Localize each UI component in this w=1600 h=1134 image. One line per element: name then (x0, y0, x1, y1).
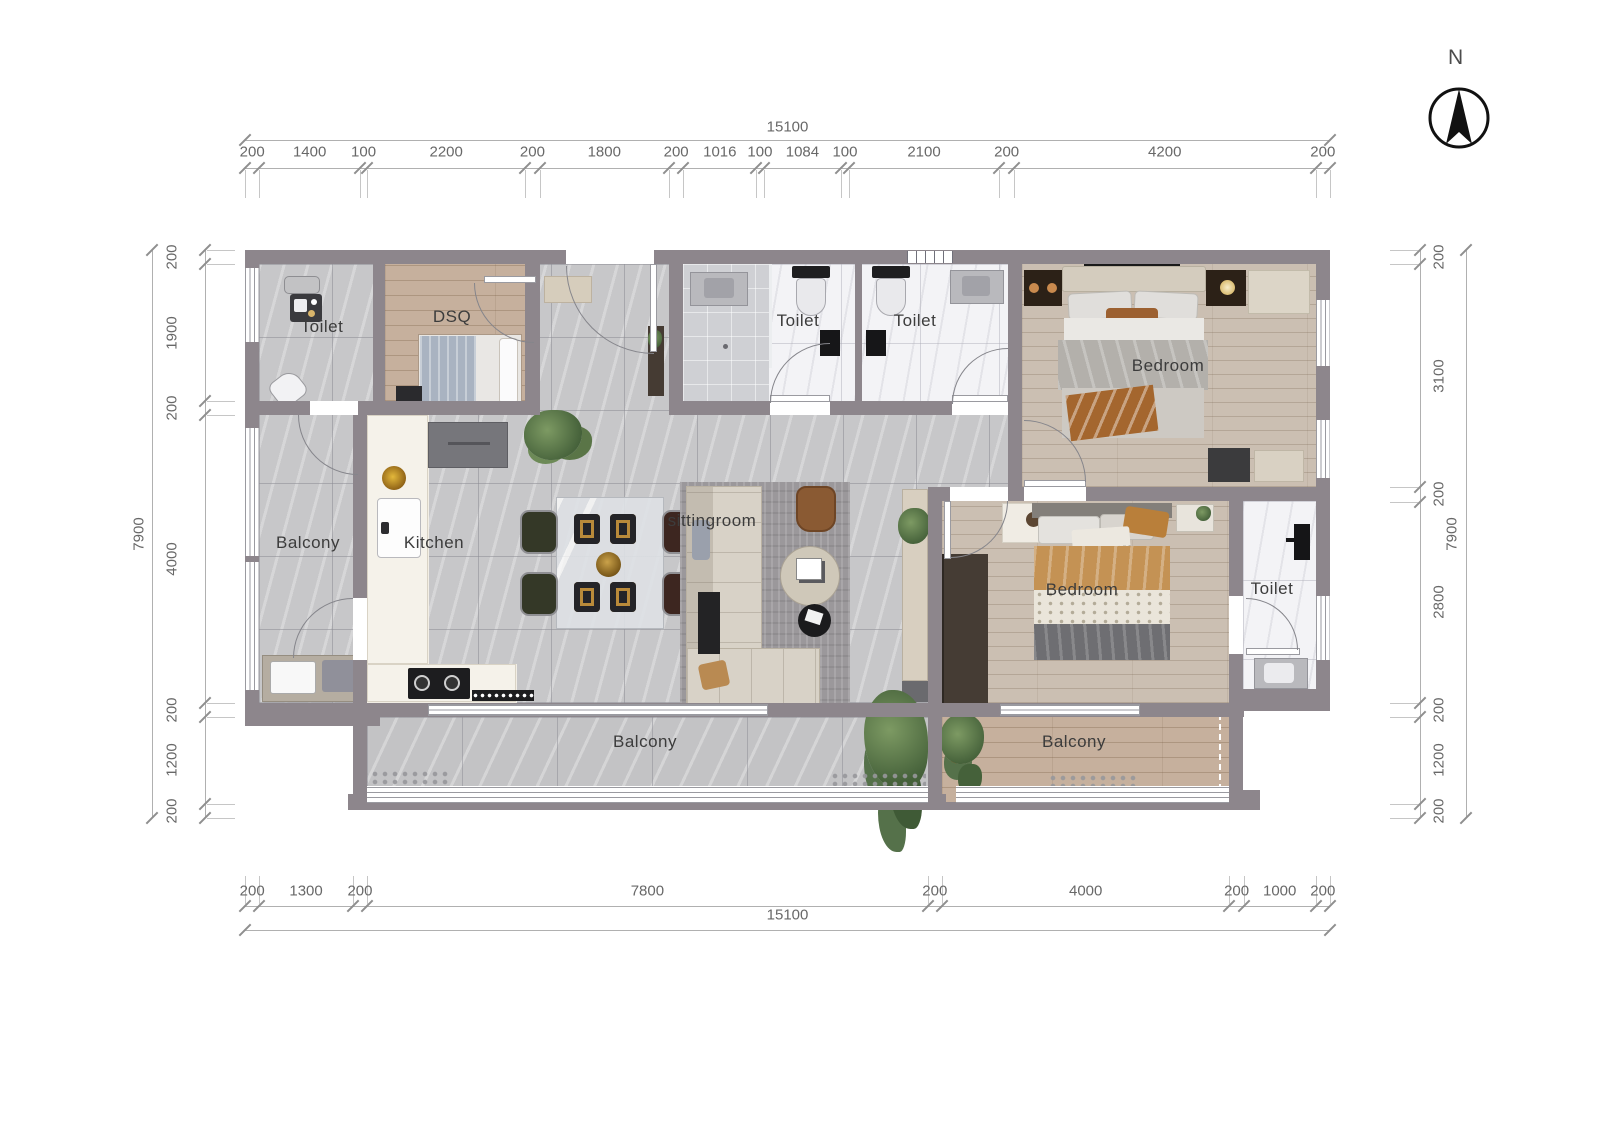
kitchen-tall-cabinet (428, 422, 508, 468)
dimension-dt rot: 200 (164, 396, 181, 421)
dimension-dt: 200 (520, 144, 545, 161)
entry-door-leaf (650, 264, 657, 352)
bedroom-tr-mat-beige (1254, 450, 1304, 482)
dimension-dt: 200 (1310, 144, 1335, 161)
dimension-dt: 100 (747, 144, 772, 161)
room-label-toilet-m2: Toilet (894, 311, 937, 331)
dimension-dt rot: 200 (164, 798, 181, 823)
dimension-dt: 200 (347, 883, 372, 900)
dimension-dt: 1000 (1263, 883, 1296, 900)
bedroom-tr-door-opening (1024, 487, 1086, 501)
dimension-dt: 2100 (907, 144, 940, 161)
dimension-dt: 2200 (430, 144, 463, 161)
dimension-ext (764, 170, 765, 198)
balcony-right-edge-fringe (1219, 714, 1227, 790)
dimension-ext (245, 170, 246, 198)
room-label-balcony-bottom-right: Balcony (1042, 732, 1106, 752)
balcony-post-right (1232, 790, 1260, 810)
window-right-ensuite (1316, 596, 1330, 660)
kitchen-cabinet-handle (448, 442, 490, 445)
window-left-balcony-2 (245, 562, 259, 690)
floor-plan-page: Toilet DSQ Toilet Toilet Bedroom Balcony… (0, 0, 1600, 1134)
dsq-bed-blanket (420, 336, 476, 406)
kitchen-burner-2 (444, 675, 460, 691)
dsq-door-leaf (484, 276, 536, 283)
bedroom-br-door-opening (950, 487, 1008, 501)
wall-toilets-divider (855, 264, 862, 401)
wall-bedroom-tr-left (1008, 264, 1022, 501)
dining-chair-small-4 (610, 582, 636, 612)
coffee-table-magazine (796, 558, 822, 580)
dimension-dt rot: 1200 (164, 744, 181, 777)
dimension-dt: 1400 (293, 144, 326, 161)
dimension-dt: 100 (832, 144, 857, 161)
dining-centerpiece (596, 552, 621, 577)
dimension-ext (683, 170, 684, 198)
toilet-tl-shelf (284, 276, 320, 294)
dimension-dt rot: 2800 (1431, 586, 1448, 619)
dimension-ext (999, 170, 1000, 198)
wall-balcony-outer-bottom (353, 802, 1243, 810)
north-arrow-icon (1427, 86, 1491, 150)
dimension-dl (1466, 250, 1467, 818)
bedroom-tr-lamp-right (1220, 280, 1235, 295)
dimension-ext (1390, 818, 1418, 819)
dimension-dl (1420, 250, 1421, 818)
dimension-ext (849, 170, 850, 198)
balcony-left-sink (270, 661, 316, 694)
toilet-m1-drain (723, 344, 728, 349)
entry-door-opening (566, 250, 654, 264)
dimension-dt rot: 200 (1431, 798, 1448, 823)
bedroom-tr-mat-dark (1208, 448, 1250, 482)
dimension-ext (207, 401, 235, 402)
dimension-ext (207, 717, 235, 718)
dimension-ext (1014, 170, 1015, 198)
dining-chair-olive-1 (520, 510, 558, 554)
toilet-tl-basin-dot (311, 299, 317, 305)
bedroom-tr-headboard (1062, 266, 1206, 292)
dimension-ext (841, 170, 842, 198)
dimension-dt rot: 1200 (1431, 744, 1448, 777)
dimension-dt rot: 7900 (131, 517, 148, 550)
dimension-dt: 1016 (703, 144, 736, 161)
ensuite-shower-arm (1286, 538, 1296, 542)
dimension-dt: 200 (994, 144, 1019, 161)
toilet-m1-wc-tank (792, 266, 830, 278)
dimension-dt rot: 1900 (164, 316, 181, 349)
dimension-ext (207, 264, 235, 265)
dimension-ext (207, 804, 235, 805)
dimension-dt: 15100 (767, 119, 809, 136)
balcony-left-washer (322, 660, 356, 692)
room-label-balcony-bottom: Balcony (613, 732, 677, 752)
dimension-ext (259, 170, 260, 198)
ensuite-shower-head (1294, 524, 1310, 560)
window-right-bedroom-tr-1 (1316, 300, 1330, 366)
kitchen-burner-1 (414, 675, 430, 691)
room-label-toilet-tl: Toilet (301, 317, 344, 337)
dining-chair-small-2 (610, 514, 636, 544)
room-label-bedroom-tr: Bedroom (1132, 356, 1204, 376)
dimension-ext (1390, 264, 1418, 265)
dimension-ext (1390, 487, 1418, 488)
dimension-dt rot: 200 (1431, 245, 1448, 270)
dimension-dt rot: 200 (164, 245, 181, 270)
toilet-m1-door-opening (770, 401, 830, 415)
toilet-tl-door-opening (310, 401, 358, 415)
dimension-ext (1390, 804, 1418, 805)
dimension-dt: 4000 (1069, 883, 1102, 900)
dimension-dl (205, 250, 206, 818)
dimension-dt: 1800 (588, 144, 621, 161)
toilet-m2-wc-tank (872, 266, 910, 278)
dimension-dt rot: 3100 (1431, 359, 1448, 392)
wall-balcony-right (1229, 703, 1243, 803)
room-label-toilet-ensuite: Toilet (1251, 579, 1294, 599)
dimension-ext (360, 170, 361, 198)
dimension-dt rot: 200 (1431, 698, 1448, 723)
dimension-dl (245, 168, 1330, 169)
dimension-ext (669, 170, 670, 198)
wall-toilet-tl-right (373, 264, 385, 415)
balcony-kitchen-door-opening (353, 598, 367, 660)
bedroom-br-blanket-gray (1034, 624, 1170, 660)
wall-sitting-right (928, 501, 942, 717)
dimension-dt: 200 (1224, 883, 1249, 900)
north-label: N (1448, 46, 1463, 70)
railing-balcony-bottom-right (956, 786, 1229, 803)
dimension-dl (152, 250, 153, 818)
dimension-dt rot: 7900 (1444, 517, 1461, 550)
kitchen-flowers (382, 466, 406, 490)
ensuite-basin (1264, 663, 1294, 683)
toilet-tl-basin-dot2 (308, 310, 315, 317)
kitchen-grill (472, 690, 534, 701)
bedroom-tr-lamp-left-2 (1047, 283, 1057, 293)
dimension-ext (207, 703, 235, 704)
dsq-bed-pillow (499, 338, 518, 404)
room-label-balcony-left: Balcony (276, 533, 340, 553)
dimension-dt: 200 (240, 144, 265, 161)
bedroom-br-wardrobe (942, 554, 988, 703)
dimension-dt: 7800 (631, 883, 664, 900)
wall-balcony-separator (928, 717, 942, 803)
room-label-dsq: DSQ (433, 307, 471, 327)
slider-bedroom-br-balcony (1000, 704, 1140, 716)
dimension-dt: 4200 (1148, 144, 1181, 161)
room-label-sittingroom: sittingroom (668, 511, 757, 531)
dimension-dt rot: 200 (164, 698, 181, 723)
dimension-dt: 200 (664, 144, 689, 161)
dimension-ext (1316, 170, 1317, 198)
ensuite-door-opening (1229, 596, 1243, 654)
window-left-balcony-1 (245, 428, 259, 556)
dimension-dl (245, 140, 1330, 141)
sofa-side-console (698, 592, 720, 654)
bedroom-tr-lamp-left-1 (1029, 283, 1039, 293)
dimension-dt rot: 200 (1431, 482, 1448, 507)
toilet-m2-vanity-basin (962, 276, 990, 296)
dimension-dt: 1300 (289, 883, 322, 900)
window-left-toilet-tl (245, 268, 259, 342)
dimension-ext (207, 250, 235, 251)
dimension-dt: 200 (922, 883, 947, 900)
dimension-dt: 15100 (767, 907, 809, 924)
dimension-ext (525, 170, 526, 198)
toilet-tl-basin (294, 299, 307, 312)
dimension-ext (1330, 170, 1331, 198)
wall-balcony-bottom-left (353, 717, 367, 803)
dining-chair-small-1 (574, 514, 600, 544)
dining-chair-olive-2 (520, 572, 558, 616)
dimension-ext (540, 170, 541, 198)
wall-entry-right (669, 264, 683, 415)
room-label-bedroom-br: Bedroom (1046, 580, 1118, 600)
dimension-dt: 200 (240, 883, 265, 900)
armchair-brown (796, 486, 836, 532)
wall-topband-bottom (245, 401, 540, 415)
dimension-ext (1390, 703, 1418, 704)
dimension-dt: 200 (1310, 883, 1335, 900)
dimension-ext (756, 170, 757, 198)
wall-top (245, 250, 1330, 264)
dimension-dl (245, 930, 1330, 931)
room-label-kitchen: Kitchen (404, 533, 464, 553)
kitchen-faucet (381, 522, 389, 534)
toilet-m2-sprayer (866, 330, 886, 356)
wall-ensuite-bottom (1229, 689, 1330, 711)
dimension-ext (1390, 250, 1418, 251)
bedroom-tr-closet (1248, 270, 1310, 314)
dining-chair-small-3 (574, 582, 600, 612)
toilet-m1-shower-divider (769, 264, 772, 368)
dimension-ext (1390, 502, 1418, 503)
window-right-bedroom-tr-2 (1316, 420, 1330, 478)
dimension-dt: 1084 (786, 144, 819, 161)
dimension-dt: 100 (351, 144, 376, 161)
toilet-m1-vanity-basin (704, 278, 734, 298)
window-top-toilet-m2 (906, 250, 954, 264)
dimension-ext (207, 818, 235, 819)
dimension-ext (367, 170, 368, 198)
slider-sitting-balcony (428, 704, 768, 716)
railing-balcony-bottom (367, 786, 928, 803)
bedroom-br-door-leaf (944, 501, 951, 559)
dimension-ext (207, 415, 235, 416)
dimension-ext (1390, 717, 1418, 718)
room-label-toilet-m1: Toilet (777, 311, 820, 331)
dimension-dt rot: 4000 (164, 542, 181, 575)
